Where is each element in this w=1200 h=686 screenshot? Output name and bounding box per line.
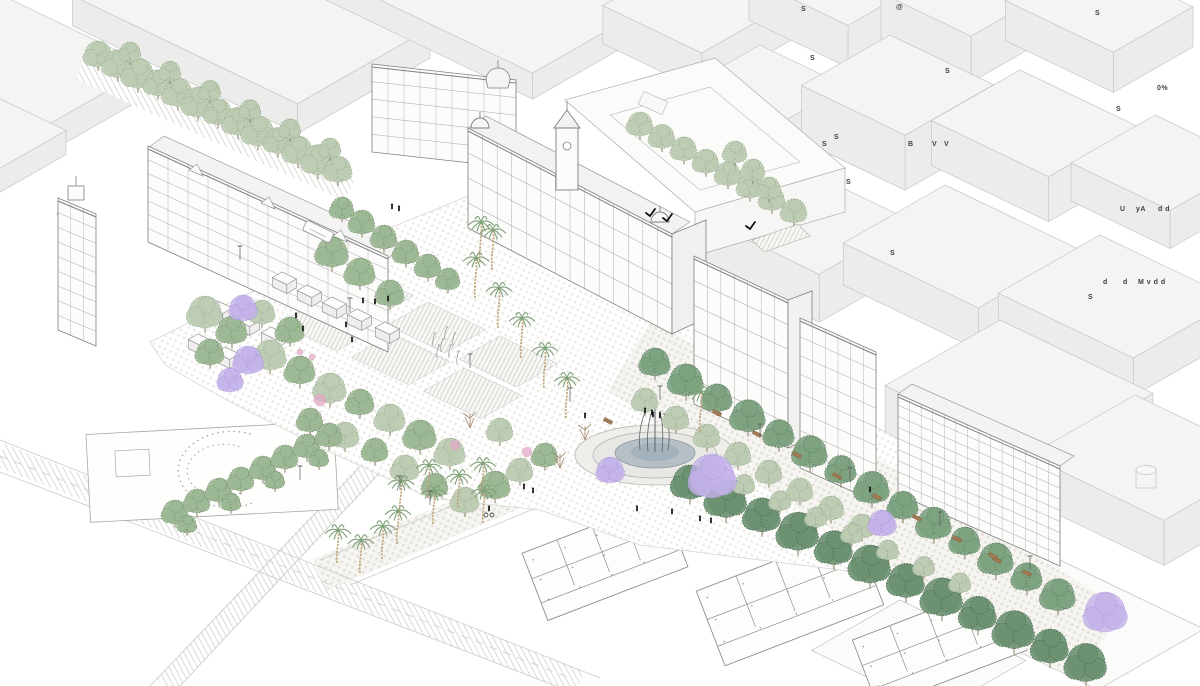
axonometric-plaza-illustration: S@SSS0%SSSBVVSUyAd dddM v d dSS	[0, 0, 1200, 686]
bell-tower-building	[58, 176, 96, 346]
clock-tower	[554, 101, 580, 190]
plaza-scene-drawing	[0, 0, 1200, 686]
